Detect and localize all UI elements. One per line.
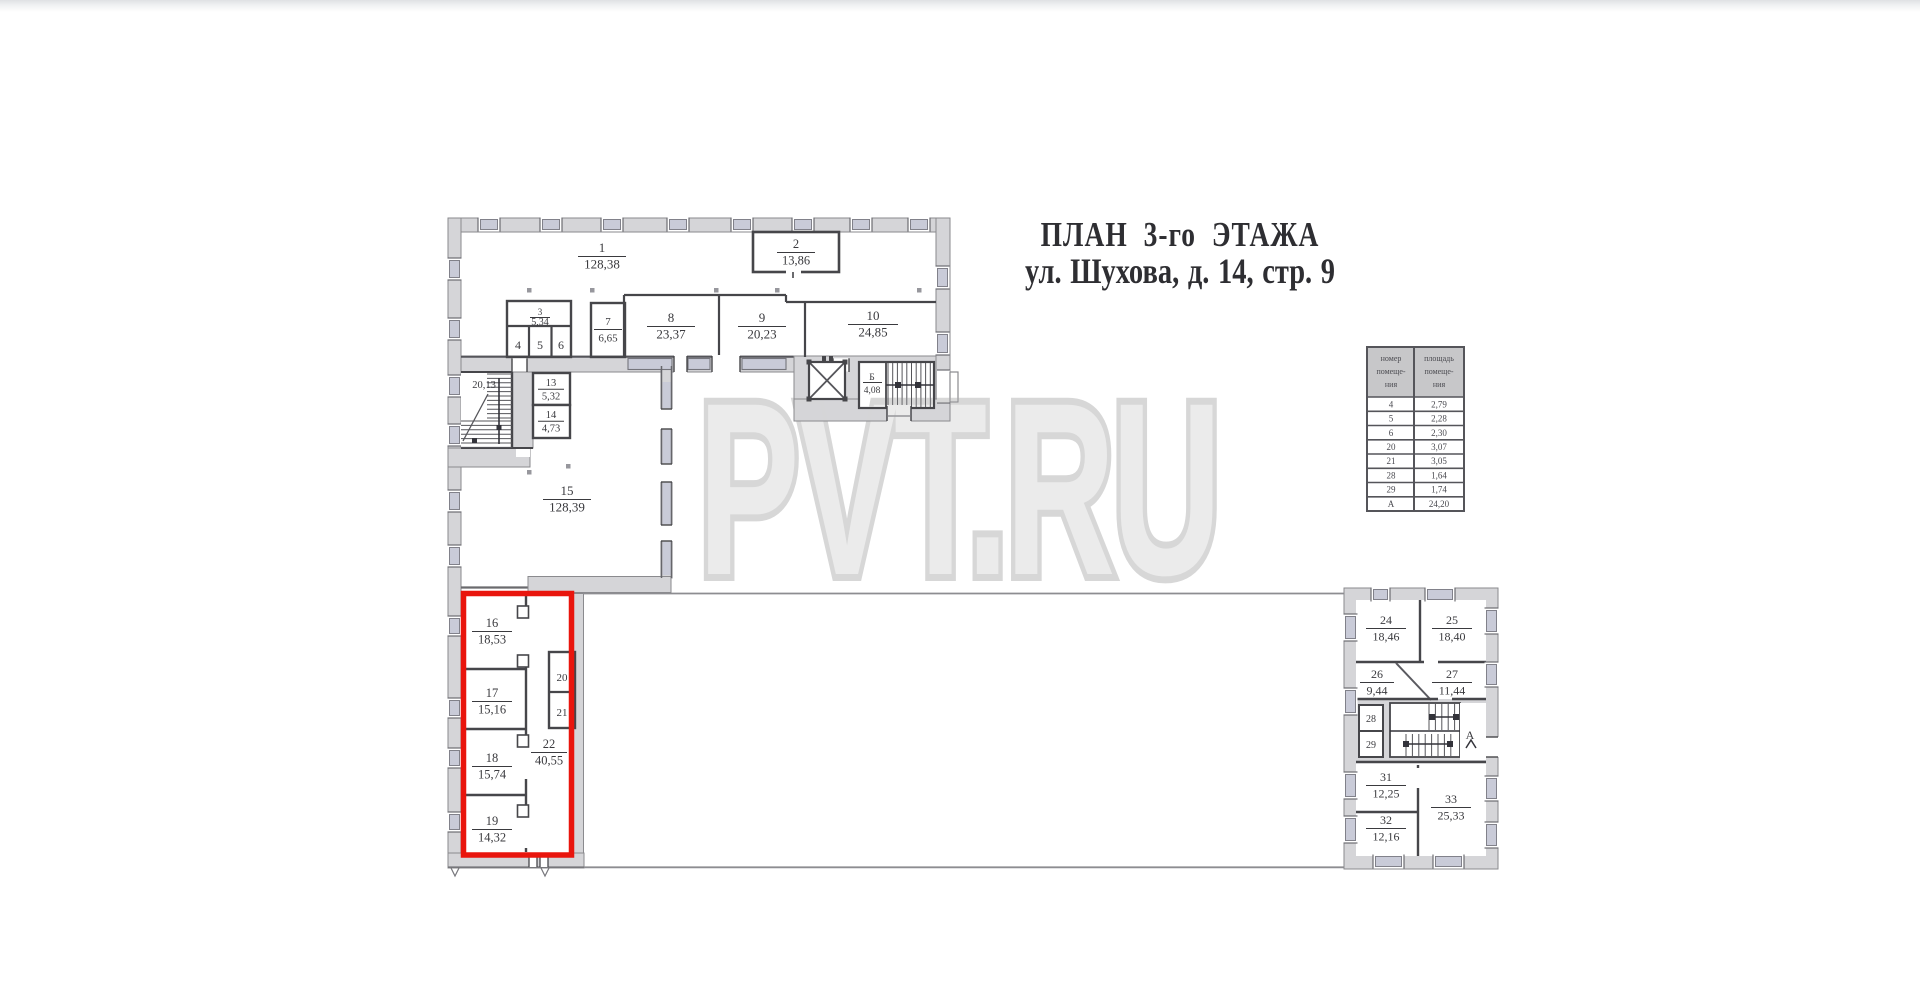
svg-text:6: 6 [558, 338, 564, 352]
svg-text:11,44: 11,44 [1439, 684, 1466, 698]
svg-text:25,33: 25,33 [1438, 809, 1465, 823]
svg-text:9: 9 [759, 310, 766, 325]
svg-text:33: 33 [1445, 792, 1457, 806]
svg-text:ПЛАН 3-го ЭТАЖА: ПЛАН 3-го ЭТАЖА [1041, 215, 1320, 254]
svg-text:13,86: 13,86 [782, 254, 810, 268]
svg-text:5,32: 5,32 [542, 392, 560, 403]
svg-text:18: 18 [486, 751, 499, 765]
svg-text:1: 1 [599, 240, 606, 255]
svg-text:2,79: 2,79 [1431, 399, 1447, 409]
svg-text:25: 25 [1446, 613, 1458, 627]
svg-text:28: 28 [1366, 714, 1376, 725]
svg-text:21: 21 [557, 707, 568, 719]
svg-text:помеще-: помеще- [1424, 367, 1453, 376]
svg-text:2,30: 2,30 [1431, 428, 1447, 438]
svg-text:13: 13 [546, 378, 557, 389]
svg-text:26: 26 [1371, 667, 1383, 681]
svg-text:4: 4 [1389, 399, 1394, 409]
svg-text:20,13: 20,13 [472, 380, 496, 391]
svg-text:А: А [1466, 728, 1475, 742]
svg-text:20: 20 [557, 672, 569, 684]
svg-text:5: 5 [1389, 414, 1394, 424]
svg-text:А: А [1388, 499, 1395, 509]
svg-text:24,20: 24,20 [1429, 499, 1450, 509]
svg-text:3: 3 [538, 307, 543, 317]
svg-text:27: 27 [1446, 667, 1458, 681]
svg-text:2: 2 [793, 237, 799, 251]
svg-text:20: 20 [1387, 442, 1397, 452]
svg-text:8: 8 [668, 310, 675, 325]
svg-text:128,39: 128,39 [549, 500, 585, 515]
svg-text:24,85: 24,85 [858, 325, 887, 340]
svg-text:помеще-: помеще- [1376, 367, 1405, 376]
svg-text:9,44: 9,44 [1367, 684, 1388, 698]
svg-text:PVT.RU: PVT.RU [698, 353, 1218, 627]
svg-text:18,46: 18,46 [1373, 630, 1400, 644]
svg-text:ул. Шухова, д. 14, стр. 9: ул. Шухова, д. 14, стр. 9 [1025, 251, 1335, 291]
svg-text:24: 24 [1380, 613, 1392, 627]
svg-text:18,40: 18,40 [1439, 630, 1466, 644]
svg-text:29: 29 [1387, 485, 1397, 495]
svg-text:28: 28 [1387, 470, 1397, 480]
svg-text:14: 14 [546, 410, 557, 421]
svg-text:31: 31 [1380, 770, 1392, 784]
svg-text:4: 4 [515, 338, 521, 352]
svg-text:15,16: 15,16 [478, 703, 506, 717]
svg-text:4,73: 4,73 [542, 424, 560, 435]
svg-text:5: 5 [537, 338, 543, 352]
svg-text:2,28: 2,28 [1431, 414, 1447, 424]
svg-text:10: 10 [867, 308, 880, 323]
svg-text:17: 17 [486, 686, 499, 700]
svg-text:29: 29 [1366, 740, 1376, 751]
svg-text:1,64: 1,64 [1431, 470, 1447, 480]
svg-text:7: 7 [605, 316, 611, 328]
svg-text:площадь: площадь [1424, 354, 1454, 363]
svg-text:18,53: 18,53 [478, 633, 506, 647]
svg-text:12,25: 12,25 [1373, 787, 1400, 801]
svg-text:14,32: 14,32 [478, 831, 506, 845]
svg-text:3,05: 3,05 [1431, 456, 1447, 466]
svg-text:номер: номер [1381, 354, 1402, 363]
svg-text:40,55: 40,55 [535, 754, 563, 768]
svg-text:6: 6 [1389, 428, 1394, 438]
svg-text:19: 19 [486, 814, 499, 828]
svg-text:3,07: 3,07 [1431, 442, 1447, 452]
svg-text:22: 22 [543, 737, 556, 751]
svg-text:15,74: 15,74 [478, 768, 507, 782]
svg-text:16: 16 [486, 616, 499, 630]
svg-text:12,16: 12,16 [1373, 830, 1400, 844]
svg-text:5,34: 5,34 [531, 317, 549, 328]
svg-text:6,65: 6,65 [598, 333, 618, 345]
svg-text:ния: ния [1385, 380, 1398, 389]
svg-text:ния: ния [1433, 380, 1446, 389]
svg-text:21: 21 [1387, 456, 1396, 466]
svg-text:15: 15 [561, 483, 574, 498]
svg-text:1,74: 1,74 [1431, 485, 1447, 495]
svg-text:20,23: 20,23 [747, 327, 776, 342]
svg-text:32: 32 [1380, 813, 1392, 827]
svg-text:23,37: 23,37 [656, 327, 686, 342]
svg-text:128,38: 128,38 [584, 257, 620, 272]
